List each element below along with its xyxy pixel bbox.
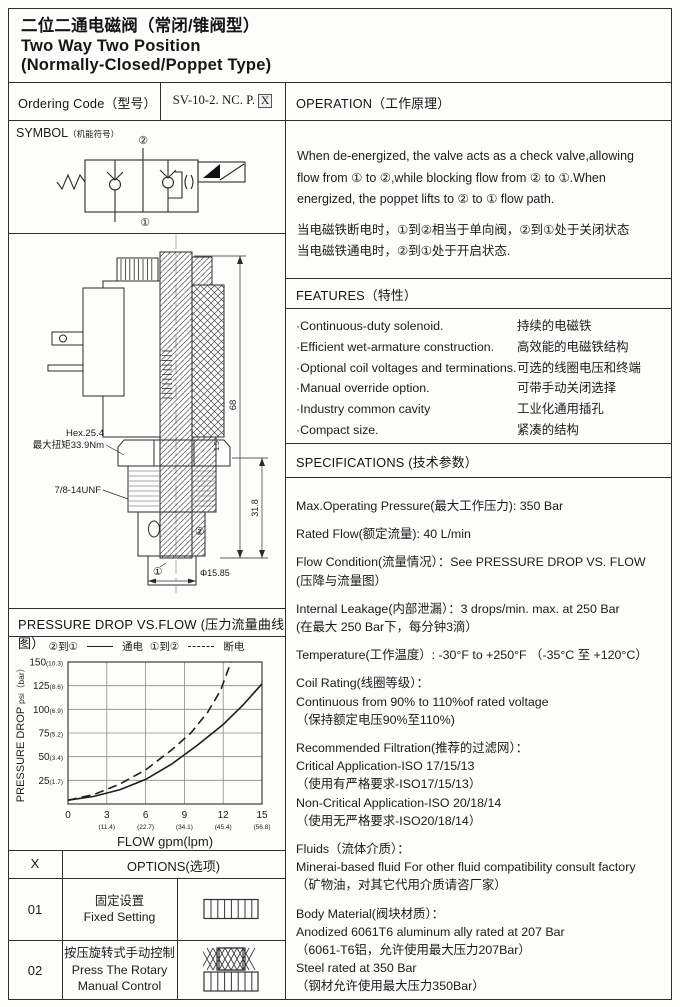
page-title: 二位二通电磁阀（常闭/锥阀型） Two Way Two Position (No… <box>8 8 672 82</box>
features-list: ·Continuous-duty solenoid.持续的电磁铁·Efficie… <box>285 308 672 443</box>
fixed-setting-icon <box>203 898 259 920</box>
x-tick-label: 12 <box>218 810 230 821</box>
feature-item: ·Industry common cavity工业化通用插孔 <box>296 399 672 420</box>
feature-item: ·Compact size.紧凑的结构 <box>296 420 672 441</box>
operation-body: When de-energized, the valve acts as a c… <box>285 120 672 278</box>
operation-text-en: When de-energized, the valve acts as a c… <box>297 146 659 211</box>
pressure-drop-chart: 25(1.7)50(3.4)75(5.2)100(6.9)125(8.6)150… <box>8 636 285 850</box>
x-tick-sublabel: (22.7) <box>137 824 154 831</box>
spec-item: Flow Condition(流量情况）：See PRESSURE DROP V… <box>296 553 666 589</box>
spec-line: Flow Condition(流量情况）：See PRESSURE DROP V… <box>296 553 666 571</box>
ordering-code-x: X <box>258 94 272 108</box>
y-tick-label: 100(6.9) <box>33 705 63 716</box>
ordering-code-value: SV-10-2. NC. P.X <box>160 82 285 120</box>
chart-section-title: PRESSURE DROP VS.FLOW (压力流量曲线图） <box>8 608 285 636</box>
spec-line: Anodized 6061T6 aluminum ally rated at 2… <box>296 923 666 941</box>
hex-label: Hex.25.4 <box>66 428 104 439</box>
title-en-1: Two Way Two Position <box>21 37 672 57</box>
drawing-port-1: ① <box>153 566 162 578</box>
legend-label: 断电 <box>223 639 244 654</box>
drawing-port-2: ② <box>195 526 204 538</box>
spec-line: Critical Application-ISO 17/15/13 <box>296 757 666 775</box>
spec-line: Max.Operating Pressure(最大工作压力): 350 Bar <box>296 497 666 515</box>
spec-line: （矿物油，对其它代用介质请咨厂家） <box>296 876 666 894</box>
option-code: 02 <box>8 940 62 1000</box>
ordering-code-label: Ordering Code（型号） <box>8 82 160 120</box>
x-tick-sublabel: (56.8) <box>254 824 271 831</box>
dim-68: 68 <box>228 400 239 411</box>
hex-torque-label: 最大扭矩33.9Nm <box>33 439 104 451</box>
x-tick-label: 9 <box>182 810 188 821</box>
y-tick-label: 25(1.7) <box>39 776 64 787</box>
feature-text-en: ·Efficient wet-armature construction. <box>296 337 517 358</box>
spec-line: Internal Leakage(内部泄漏）：3 drops/min. max.… <box>296 600 666 618</box>
options-table-row: 01固定设置Fixed Setting <box>8 878 285 940</box>
solenoid-triangle-icon <box>203 164 220 178</box>
symbol-port-1: ① <box>140 217 150 229</box>
valve-drawing-section: Hex.25.4 最大扭矩33.9Nm 7/8-14UNF 68 31.8 1.… <box>8 233 285 608</box>
spec-item: Recommended Filtration(推荐的过滤网）：Critical … <box>296 739 666 830</box>
features-section-title: FEATURES（特性） <box>285 278 672 308</box>
x-axis-label: FLOW gpm(lpm) <box>117 834 213 849</box>
option-label: 按压旋转式手动控制Press The RotaryManual Control <box>62 940 177 1000</box>
spec-line: （钢材允许使用最大压力350Bar） <box>296 977 666 995</box>
x-tick-label: 15 <box>256 810 268 821</box>
legend-dashed-line-icon <box>188 646 214 647</box>
x-tick-label: 6 <box>143 810 149 821</box>
datasheet-page: 二位二通电磁阀（常闭/锥阀型） Two Way Two Position (No… <box>0 0 680 1007</box>
feature-text-zh: 工业化通用插孔 <box>517 399 604 420</box>
option-icon-cell <box>177 878 285 940</box>
dim-1-5: 1.5 <box>214 441 221 451</box>
spec-line: Rated Flow(额定流量): 40 L/min <box>296 525 666 543</box>
feature-item: ·Manual override option.可带手动关闭选择 <box>296 378 672 399</box>
options-column-x: X <box>8 850 62 878</box>
chart-legend: ②到①通电①到②断电 <box>8 639 285 654</box>
option-icon-cell <box>177 940 285 1000</box>
dim-diameter: Φ15.85 <box>200 568 230 578</box>
feature-text-zh: 高效能的电磁铁结构 <box>517 337 629 358</box>
title-zh: 二位二通电磁阀（常闭/锥阀型） <box>21 17 672 37</box>
spec-item: Rated Flow(额定流量): 40 L/min <box>296 525 666 543</box>
rotary-knob-icon <box>203 947 259 993</box>
ordering-code-text: SV-10-2. NC. P. <box>173 93 255 107</box>
spec-item: Coil Rating(线圈等级）：Continuous from 90% to… <box>296 674 666 729</box>
spec-item: Max.Operating Pressure(最大工作压力): 350 Bar <box>296 497 666 515</box>
x-tick-sublabel: (11.4) <box>99 824 116 831</box>
option-label: 固定设置Fixed Setting <box>62 878 177 940</box>
spec-line: (在最大 250 Bar下，每分钟3滴） <box>296 618 666 636</box>
feature-text-zh: 紧凑的结构 <box>517 420 579 441</box>
dim-31-8: 31.8 <box>250 499 260 517</box>
spec-line: （保持额定电压90%至110%) <box>296 711 666 729</box>
spec-line: (压降与流量图） <box>296 572 666 590</box>
options-column-header: OPTIONS(选项) <box>62 850 285 878</box>
operation-text-zh: 当电磁铁断电时，①到②相当于单向阀，②到①处于关闭状态 当电磁铁通电时，②到①处… <box>297 220 659 262</box>
spec-line: Minerai-based fluid For other fluid comp… <box>296 858 666 876</box>
y-tick-label: 75(5.2) <box>39 729 64 740</box>
spec-item: Internal Leakage(内部泄漏）：3 drops/min. max.… <box>296 600 666 636</box>
x-tick-sublabel: (45.4) <box>215 824 232 831</box>
spec-line: Steel rated at 350 Bar <box>296 959 666 977</box>
pressure-drop-chart-plot: 25(1.7)50(3.4)75(5.2)100(6.9)125(8.6)150… <box>8 636 285 850</box>
spec-line: （6061-T6铝，允许使用最大压力207Bar） <box>296 941 666 959</box>
option-code: 01 <box>8 878 62 940</box>
spec-item: Body Material(阀块材质）：Anodized 6061T6 alum… <box>296 905 666 996</box>
symbol-port-2: ② <box>138 135 148 147</box>
specifications-section-title: SPECIFICATIONS (技术参数） <box>285 443 672 477</box>
feature-item: ·Continuous-duty solenoid.持续的电磁铁 <box>296 316 672 337</box>
thread-label: 7/8-14UNF <box>55 485 102 496</box>
legend-ports: ①到② <box>150 639 179 654</box>
legend-label: 通电 <box>122 639 143 654</box>
feature-text-en: ·Industry common cavity <box>296 399 517 420</box>
feature-text-zh: 可带手动关闭选择 <box>517 378 616 399</box>
x-tick-sublabel: (34.1) <box>176 824 193 831</box>
legend-ports: ②到① <box>49 639 78 654</box>
symbol-section: SYMBOL（机能符号） <box>8 120 285 233</box>
spec-line: Fluids（流体介质）： <box>296 840 666 858</box>
spec-line: （使用有严格要求-ISO17/15/13） <box>296 775 666 793</box>
y-axis-label: PRESSURE DROP psi（bar） <box>15 664 27 802</box>
spec-line: Non-Critical Application-ISO 20/18/14 <box>296 794 666 812</box>
valve-cross-section-drawing: Hex.25.4 最大扭矩33.9Nm 7/8-14UNF 68 31.8 1.… <box>8 233 285 608</box>
feature-text-en: ·Manual override option. <box>296 378 517 399</box>
series-solid <box>68 684 262 800</box>
y-tick-label: 150(10.3) <box>29 658 63 669</box>
spec-line: Continuous from 90% to 110%of rated volt… <box>296 693 666 711</box>
spec-line: Recommended Filtration(推荐的过滤网）： <box>296 739 666 757</box>
feature-text-en: ·Compact size. <box>296 420 517 441</box>
x-tick-label: 0 <box>65 810 71 821</box>
spec-line: （使用无严格要求-ISO20/18/14） <box>296 812 666 830</box>
spec-item: Fluids（流体介质）：Minerai-based fluid For oth… <box>296 840 666 895</box>
spec-line: Temperature(工作温度）: -30°F to +250°F （-35°… <box>296 646 666 664</box>
y-tick-label: 125(8.6) <box>33 681 63 692</box>
feature-text-en: ·Optional coil voltages and terminations… <box>296 358 517 379</box>
feature-item: ·Optional coil voltages and terminations… <box>296 358 672 379</box>
options-rows: 01固定设置Fixed Setting02按压旋转式手动控制Press The … <box>8 878 285 1000</box>
y-tick-label: 50(3.4) <box>39 752 64 763</box>
spec-line: Coil Rating(线圈等级）： <box>296 674 666 692</box>
symbol-section-title: SYMBOL（机能符号） <box>16 126 119 140</box>
feature-text-en: ·Continuous-duty solenoid. <box>296 316 517 337</box>
x-tick-label: 3 <box>104 810 110 821</box>
spec-line: Body Material(阀块材质）： <box>296 905 666 923</box>
operation-section-title: OPERATION（工作原理） <box>285 82 672 120</box>
feature-text-zh: 持续的电磁铁 <box>517 316 591 337</box>
series-dashed <box>68 662 231 800</box>
title-en-2: (Normally-Closed/Poppet Type) <box>21 56 672 76</box>
feature-item: ·Efficient wet-armature construction.高效能… <box>296 337 672 358</box>
spec-item: Temperature(工作温度）: -30°F to +250°F （-35°… <box>296 646 666 664</box>
specifications-list: Max.Operating Pressure(最大工作压力): 350 BarR… <box>285 477 672 1000</box>
options-table-row: 02按压旋转式手动控制Press The RotaryManual Contro… <box>8 940 285 1000</box>
legend-solid-line-icon <box>87 646 113 647</box>
feature-text-zh: 可选的线圈电压和终端 <box>517 358 641 379</box>
